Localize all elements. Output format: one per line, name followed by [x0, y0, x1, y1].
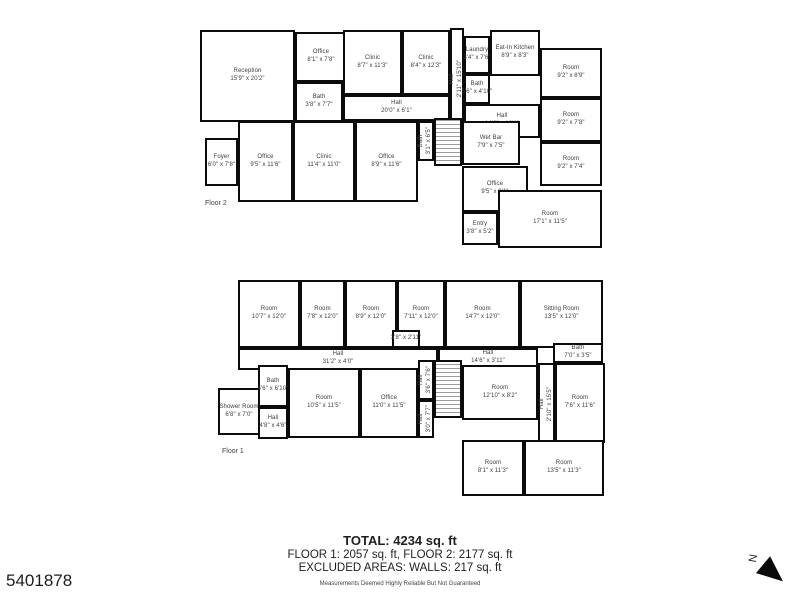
room-6: Room10'5" x 11'5"	[288, 368, 360, 438]
room-8: Room7'6" x 11'6"	[555, 363, 605, 443]
floor-areas-text: FLOOR 1: 2057 sq. ft, FLOOR 2: 2177 sq. …	[0, 549, 800, 561]
hall-small: Hall4'8" x 4'6"	[258, 407, 288, 439]
hall-stair-1: Hall3'6" x 7'6"	[418, 360, 434, 400]
mls-number: 5401878	[6, 571, 72, 591]
closet: 3'8" x 2'11"	[392, 330, 420, 348]
north-arrow-icon	[756, 556, 790, 590]
room-10: Room13'5" x 11'3"	[524, 440, 604, 496]
floor-label: Floor 1	[222, 448, 244, 455]
room-1: Room10'7" x 12'0"	[238, 280, 300, 348]
sitting-room: Sitting Room13'5" x 12'0"	[520, 280, 603, 348]
hall-stair-2: Hall3'0" x 7'7"	[418, 400, 434, 438]
hall-vertical-right: Hall2'10" x 15'5"	[538, 363, 555, 445]
shower-room: Shower Room6'8" x 7'0"	[218, 388, 260, 435]
room-2: Room7'8" x 12'0"	[300, 280, 345, 348]
room-3: Room8'9" x 12'0"	[345, 280, 397, 348]
floorplan-page: Reception15'9" x 20'2"Office8'1" x 7'8"B…	[0, 0, 800, 600]
bath-top-right: Bath7'0" x 3'5"	[553, 343, 603, 363]
north-arrow: N	[742, 548, 794, 596]
room-9: Room8'1" x 11'3"	[462, 440, 524, 496]
office-f1: Office11'0" x 11'5"	[360, 368, 418, 438]
excluded-areas-text: EXCLUDED AREAS: WALLS: 217 sq. ft	[0, 562, 800, 574]
area-summary: TOTAL: 4234 sq. ft FLOOR 1: 2057 sq. ft,…	[0, 533, 800, 587]
disclaimer-text: Measurements Deemed Highly Reliable But …	[0, 581, 800, 587]
room-5: Room14'7" x 12'0"	[445, 280, 520, 348]
bath-lower: Bath4'6" x 6'10"	[258, 365, 288, 407]
stairs	[434, 360, 462, 418]
total-area-text: TOTAL: 4234 sq. ft	[0, 533, 800, 548]
north-label: N	[745, 553, 758, 563]
floor-1-plan: Room10'7" x 12'0"Room7'8" x 12'0"Room8'9…	[0, 0, 800, 600]
room-7: Room12'10" x 8'2"	[462, 365, 538, 420]
